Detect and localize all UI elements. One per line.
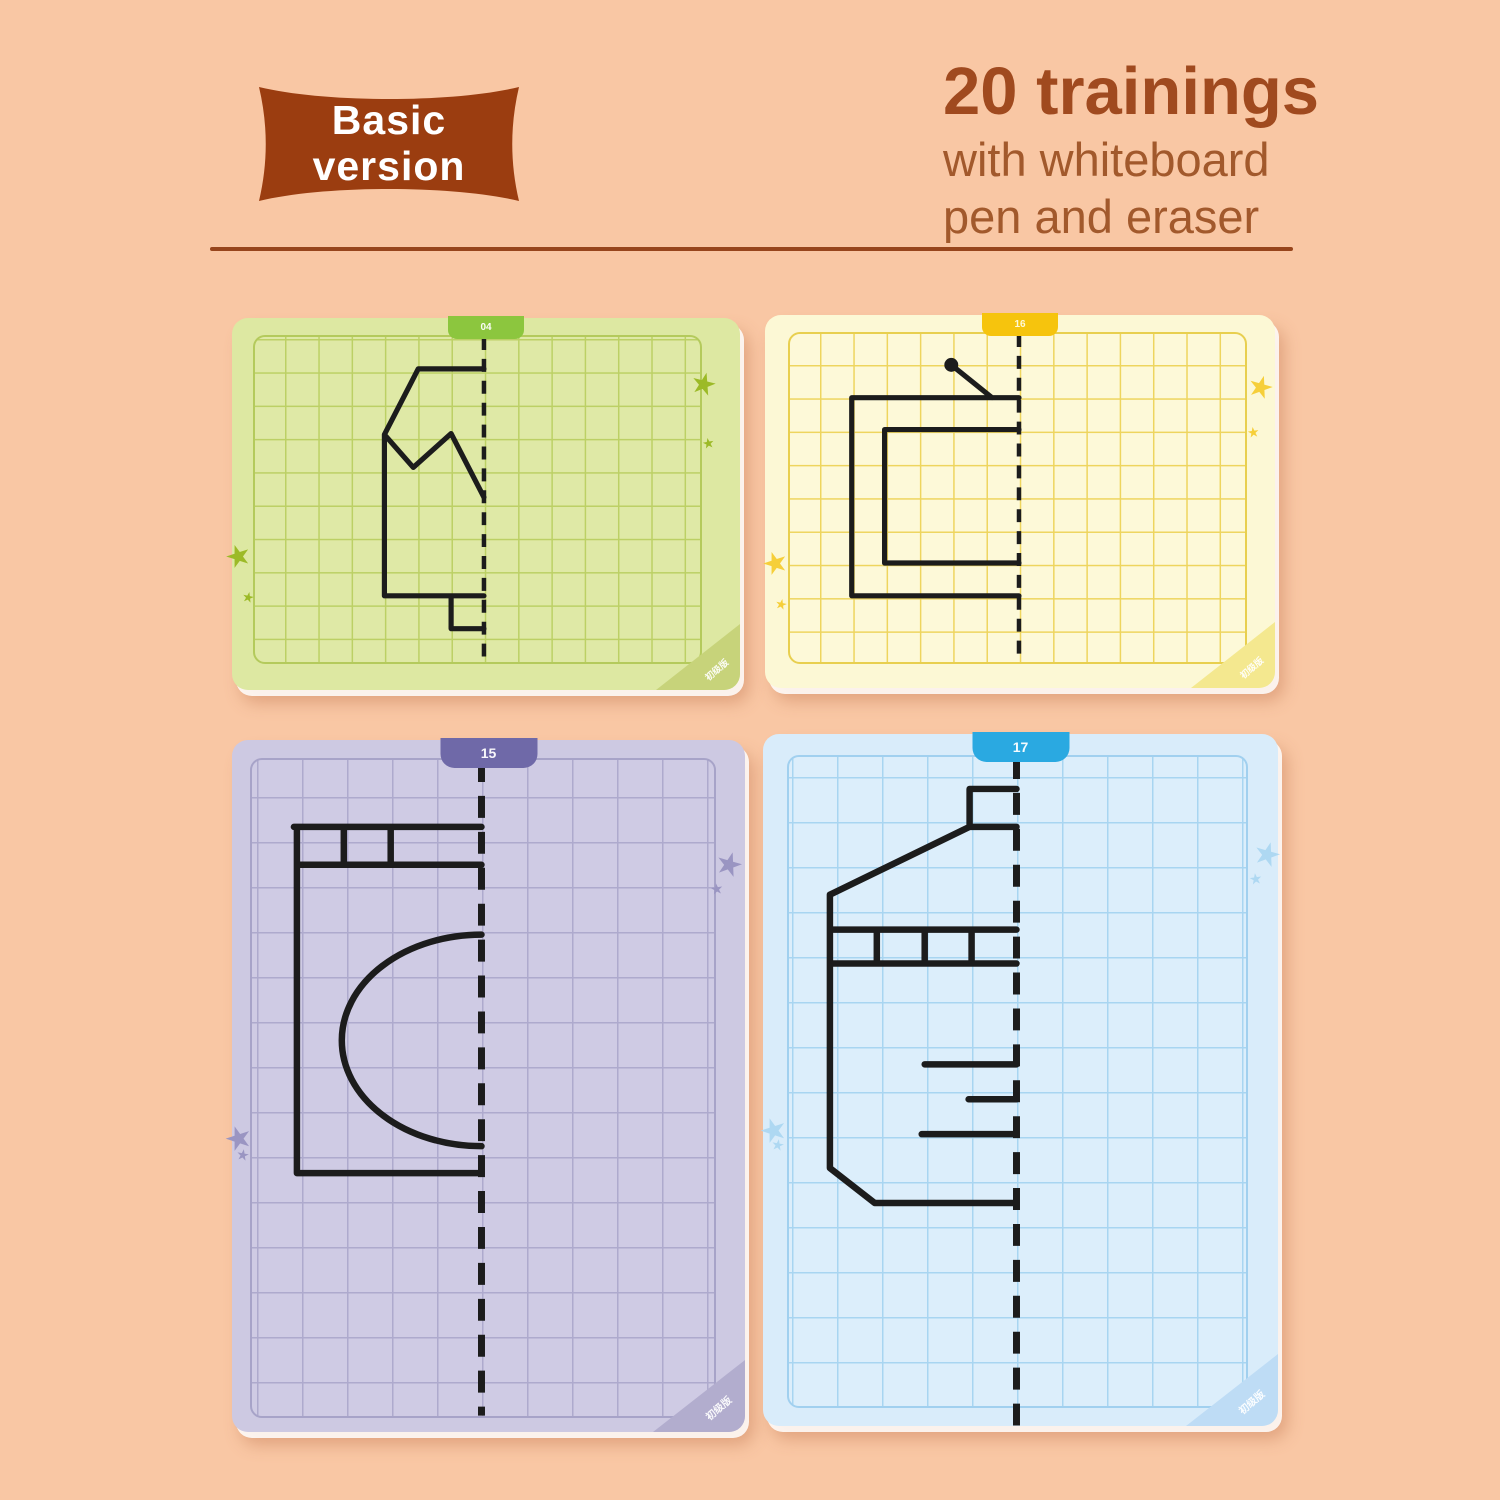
- corner-label: 初级版: [702, 656, 731, 684]
- headline-title: 20 trainings: [943, 58, 1363, 125]
- corner-ribbon: 初级版: [653, 1360, 745, 1432]
- corner-label: 初级版: [1235, 1386, 1267, 1417]
- product-banner: Basic version 20 trainings with whiteboa…: [0, 0, 1500, 1500]
- training-card-blue: 17 ★ ★ ★ ★ 初级版: [763, 734, 1278, 1426]
- card-corner-clip: 初级版: [232, 740, 745, 1432]
- badge-text: Basic version: [253, 73, 525, 215]
- headline: 20 trainings with whiteboard pen and era…: [943, 58, 1363, 246]
- training-card-purple: 15 ★ ★ ★ ★ 初级版: [232, 740, 745, 1432]
- training-card-green: 04 ★ ★ ★ ★ 初级版: [232, 318, 740, 690]
- badge-line1: Basic: [332, 98, 446, 144]
- corner-ribbon: 初级版: [1191, 622, 1275, 688]
- card-corner-clip: 初级版: [765, 315, 1275, 688]
- headline-subtitle-1: with whiteboard: [943, 131, 1363, 188]
- basic-version-badge: Basic version: [253, 73, 525, 215]
- training-card-yellow: 16 ★ ★ ★ ★ 初级版: [765, 315, 1275, 688]
- corner-label: 初级版: [1237, 654, 1266, 682]
- badge-line2: version: [313, 144, 466, 190]
- headline-subtitle-2: pen and eraser: [943, 188, 1363, 245]
- card-corner-clip: 初级版: [232, 318, 740, 690]
- card-corner-clip: 初级版: [763, 734, 1278, 1426]
- divider-line: [210, 247, 1293, 251]
- corner-ribbon: 初级版: [656, 624, 740, 690]
- corner-label: 初级版: [702, 1392, 734, 1423]
- corner-ribbon: 初级版: [1186, 1354, 1278, 1426]
